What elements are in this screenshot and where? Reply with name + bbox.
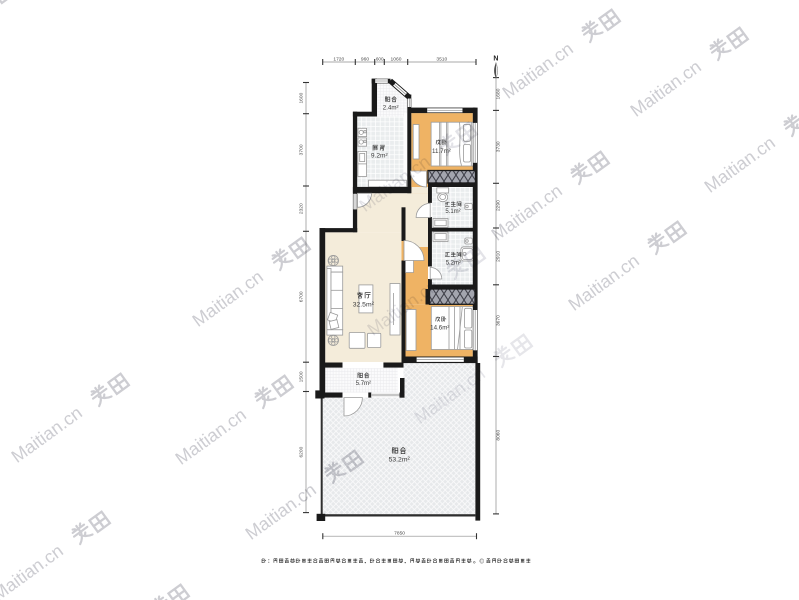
svg-text:1060: 1060	[391, 57, 402, 63]
svg-text:8060: 8060	[495, 429, 501, 440]
svg-text:1720: 1720	[333, 57, 344, 63]
svg-text:2.4m²: 2.4m²	[383, 104, 399, 111]
svg-text:2320: 2320	[299, 203, 305, 214]
svg-text:1500: 1500	[299, 371, 305, 382]
svg-text:3510: 3510	[436, 57, 447, 63]
svg-text:14.6m²: 14.6m²	[430, 324, 449, 331]
svg-text:1600: 1600	[299, 92, 305, 103]
svg-text:960: 960	[361, 57, 369, 63]
svg-text:3670: 3670	[495, 315, 501, 326]
svg-text:2290: 2290	[495, 200, 501, 211]
svg-text:600: 600	[376, 57, 384, 62]
svg-text:6700: 6700	[299, 291, 305, 302]
svg-text:32.5m²: 32.5m²	[353, 302, 375, 309]
svg-text:5.7m²: 5.7m²	[356, 381, 371, 387]
svg-text:N: N	[493, 56, 498, 63]
svg-text:6200: 6200	[299, 446, 305, 457]
svg-text:53.2m²: 53.2m²	[389, 457, 411, 464]
svg-text:9.2m²: 9.2m²	[371, 153, 389, 160]
svg-text:7850: 7850	[394, 531, 405, 537]
svg-text:2910: 2910	[495, 251, 501, 262]
svg-text:3730: 3730	[495, 141, 501, 152]
svg-text:5.1m²: 5.1m²	[445, 209, 460, 215]
svg-text:©: ©	[480, 558, 485, 565]
svg-text:3700: 3700	[299, 144, 305, 155]
